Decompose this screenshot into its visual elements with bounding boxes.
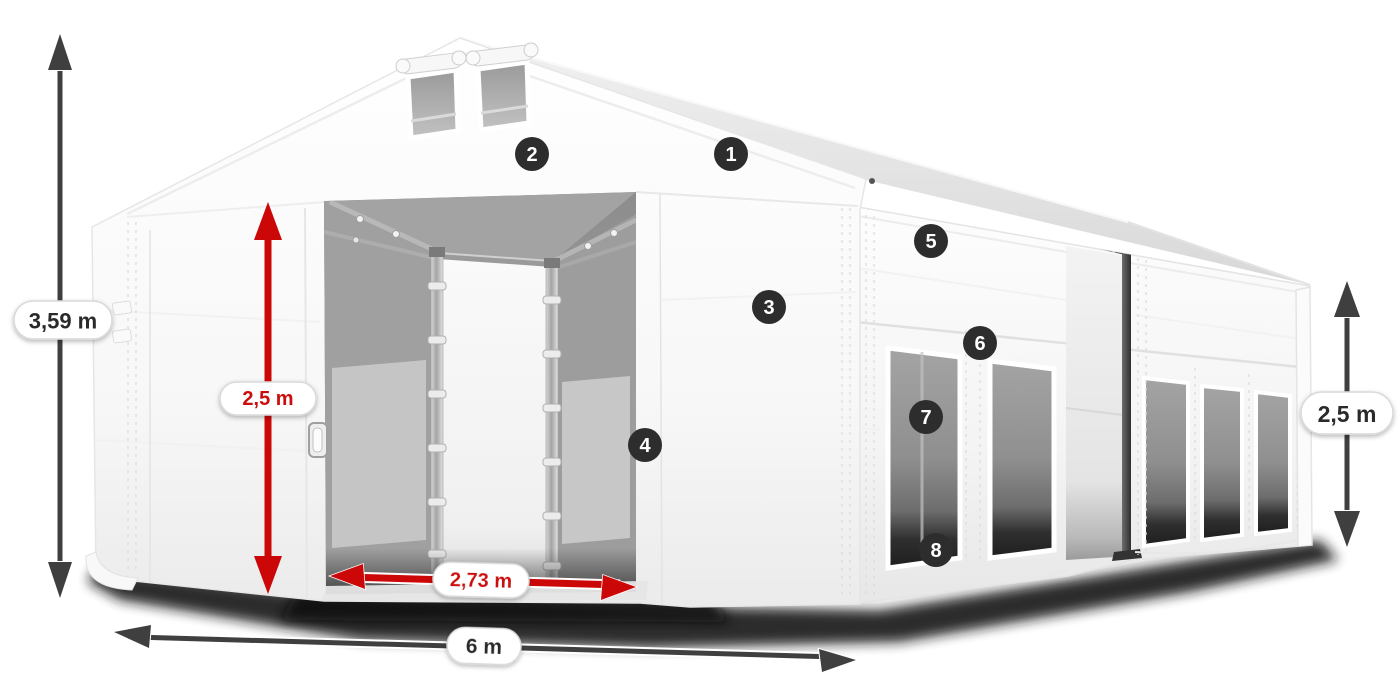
- callout-badge-3[interactable]: 3: [752, 290, 786, 324]
- roof-hook: [869, 178, 875, 184]
- dimension-label-total-height: 3,59 m: [14, 301, 112, 339]
- mesh-window-side-4: [1202, 386, 1242, 540]
- tent-illustration: 3,59 m 2,5 m 2,73 m 6 m: [0, 0, 1400, 700]
- svg-text:3,59 m: 3,59 m: [29, 309, 98, 334]
- interior-pole-right: [543, 258, 561, 590]
- svg-text:2,73 m: 2,73 m: [450, 569, 513, 593]
- interior-window-left: [332, 360, 426, 548]
- rear-doorway: [438, 252, 552, 594]
- dimension-arrow-side-height: 2,5 m: [1301, 281, 1393, 547]
- entrance-opening: [320, 188, 642, 598]
- svg-text:2,5 m: 2,5 m: [242, 388, 293, 410]
- svg-text:2,5 m: 2,5 m: [1318, 401, 1377, 427]
- callout-badge-6[interactable]: 6: [963, 326, 997, 360]
- mesh-window-side-2: [990, 361, 1054, 558]
- svg-text:4: 4: [639, 435, 651, 457]
- svg-text:5: 5: [925, 231, 936, 253]
- dimension-label-length: 6 m: [446, 627, 521, 665]
- svg-text:8: 8: [930, 540, 941, 562]
- mesh-window-side-1: [888, 348, 960, 568]
- callout-badge-1[interactable]: 1: [714, 137, 748, 171]
- svg-text:2: 2: [526, 144, 537, 166]
- callout-badge-5[interactable]: 5: [914, 224, 948, 258]
- sliding-wall-pole: [1122, 246, 1131, 556]
- svg-text:1: 1: [725, 144, 736, 166]
- product-diagram-stage: 3,59 m 2,5 m 2,73 m 6 m: [0, 0, 1400, 700]
- svg-text:6 m: 6 m: [466, 635, 503, 659]
- dimension-label-side-height: 2,5 m: [1301, 392, 1393, 434]
- callout-badge-4[interactable]: 4: [628, 428, 662, 462]
- callout-badge-8[interactable]: 8: [919, 533, 953, 567]
- svg-text:6: 6: [974, 333, 985, 355]
- callout-badge-2[interactable]: 2: [515, 137, 549, 171]
- mesh-window-side-5: [1256, 392, 1290, 534]
- svg-text:3: 3: [763, 297, 774, 319]
- dimension-label-door-height: 2,5 m: [220, 382, 316, 415]
- dimension-label-door-width: 2,73 m: [433, 562, 530, 599]
- mesh-window-side-3: [1144, 378, 1188, 546]
- interior-window-right: [562, 376, 630, 544]
- door-handle: [309, 423, 327, 457]
- side-wall-opening: [1064, 238, 1142, 561]
- svg-text:7: 7: [920, 407, 931, 429]
- interior-pole-left: [428, 247, 446, 594]
- callout-badge-7[interactable]: 7: [909, 400, 943, 434]
